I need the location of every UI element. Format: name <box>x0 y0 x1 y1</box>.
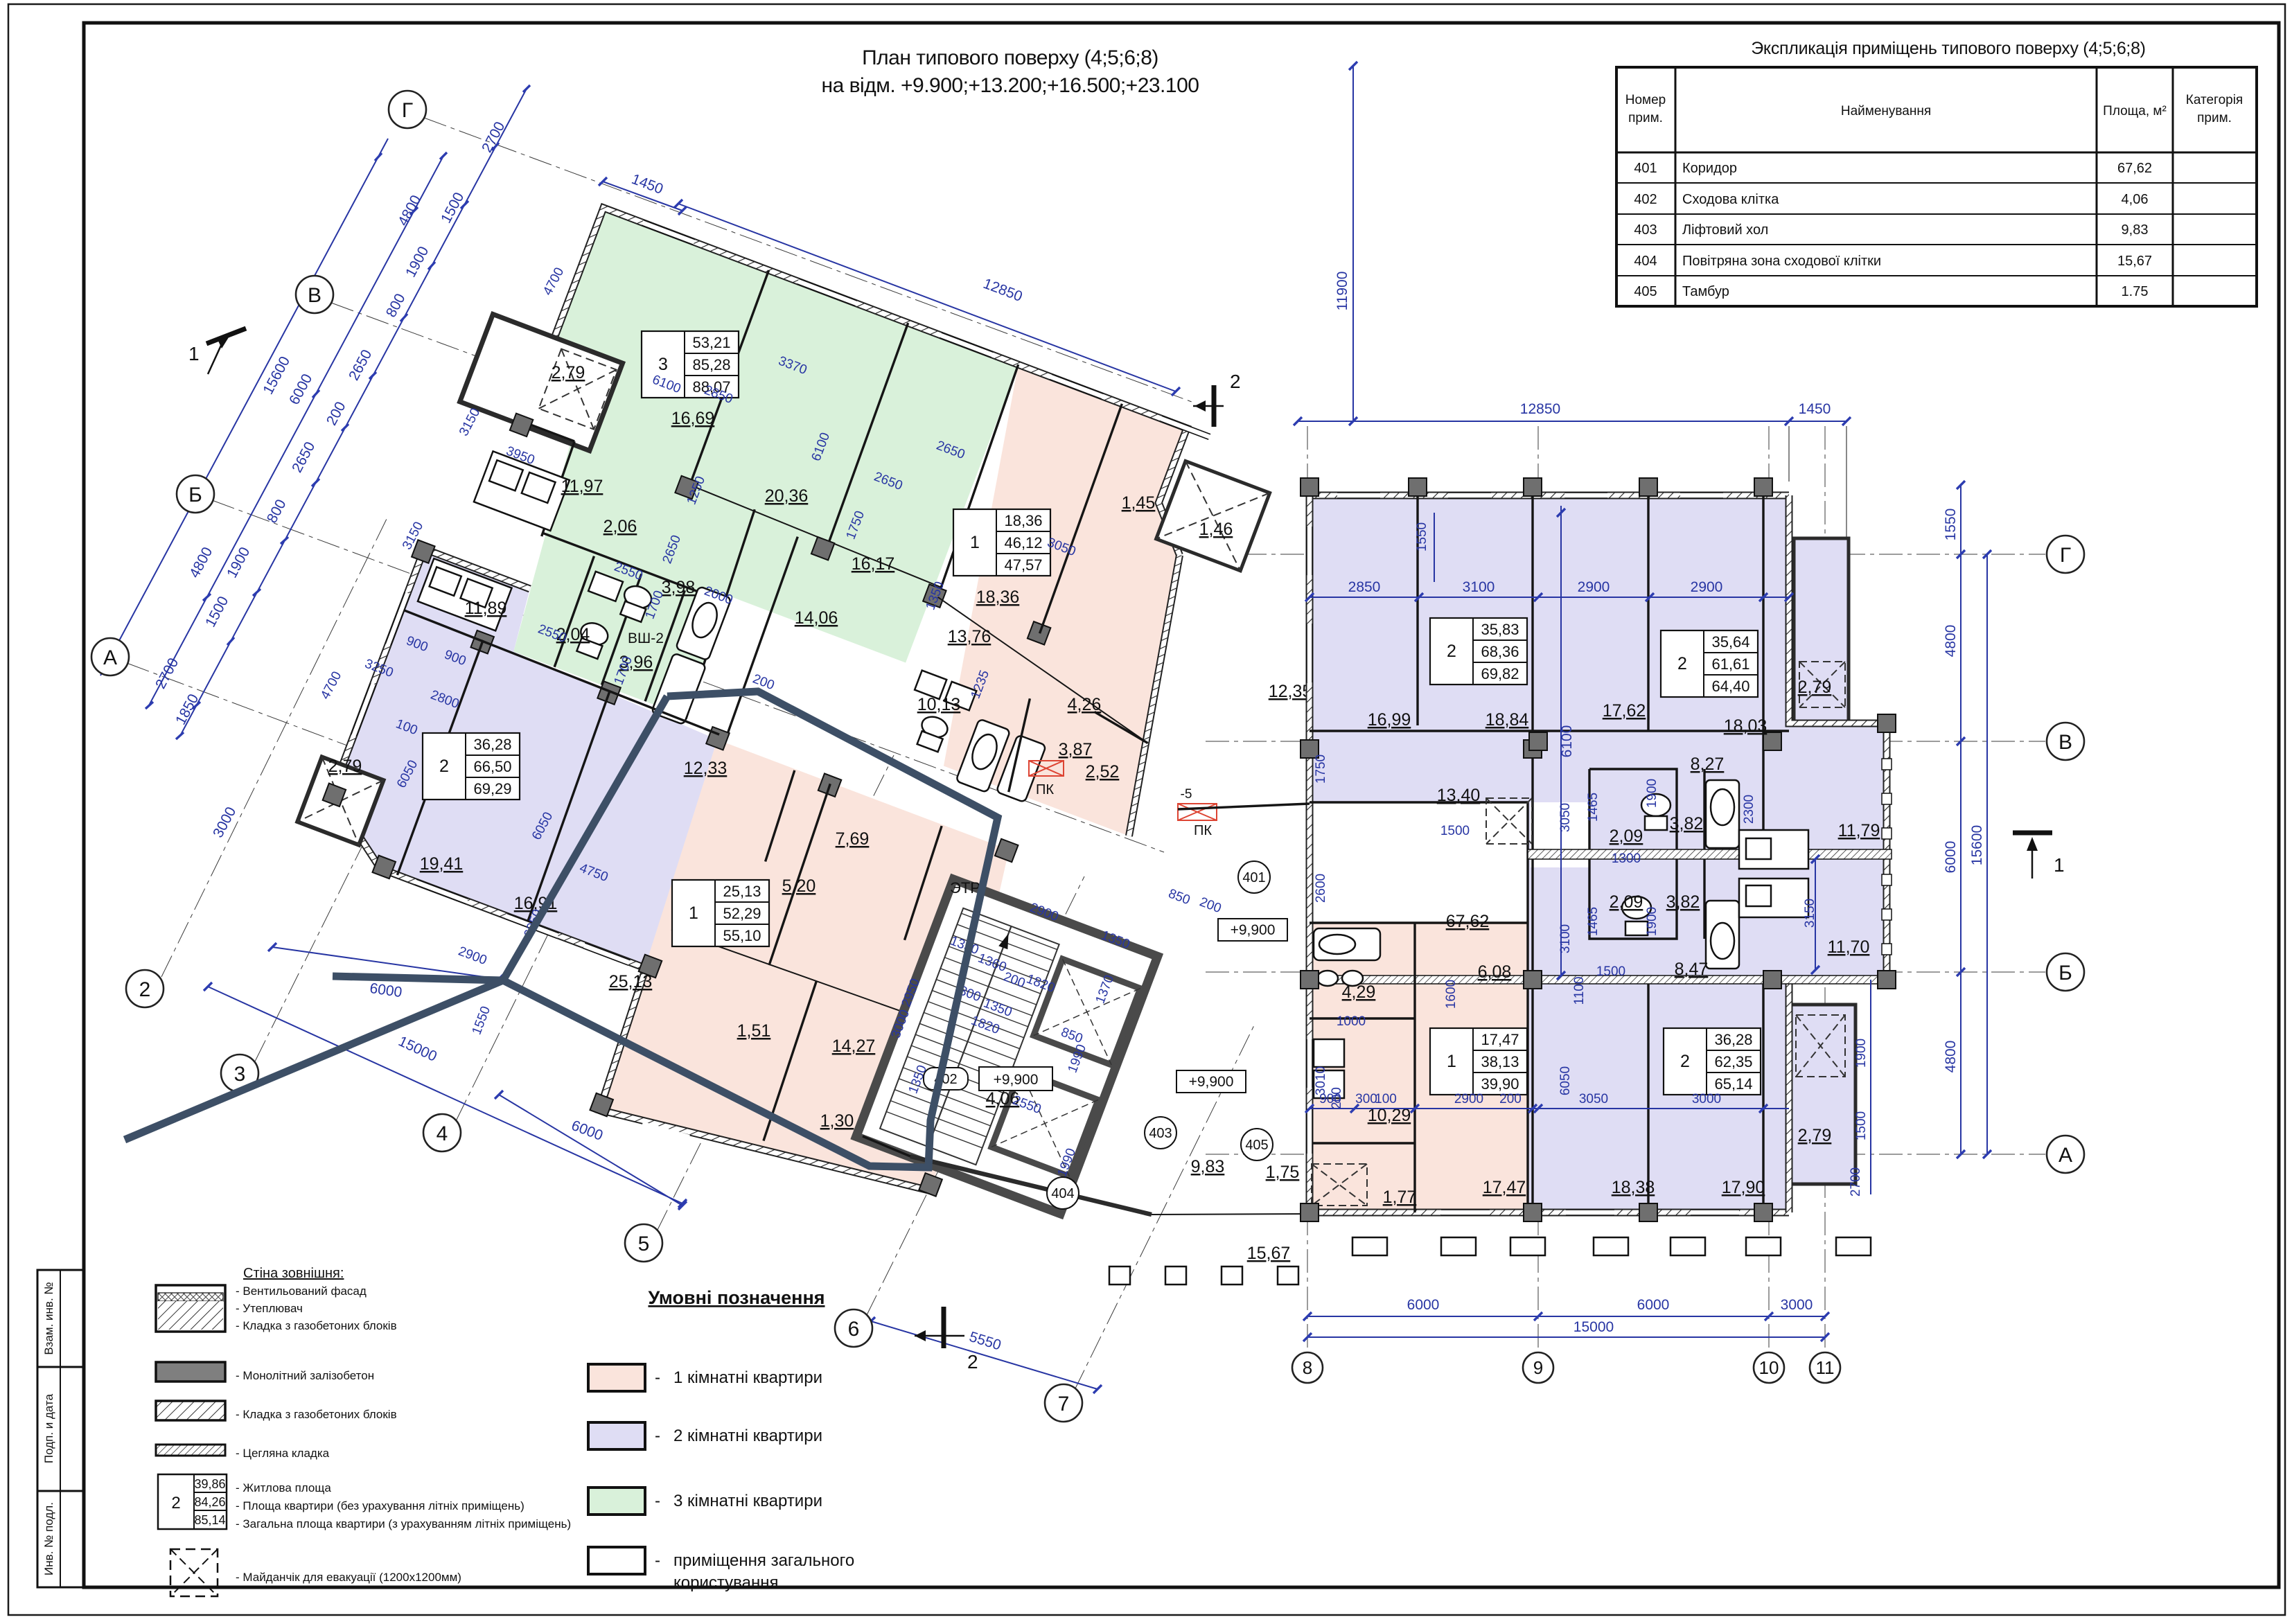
svg-text:- Кладка з газобетоних блоків: - Кладка з газобетоних блоків <box>236 1408 397 1421</box>
svg-text:2900: 2900 <box>1578 579 1610 595</box>
svg-text:1500: 1500 <box>1440 824 1470 838</box>
svg-text:405: 405 <box>1245 1138 1268 1153</box>
svg-text:3: 3 <box>234 1063 246 1086</box>
svg-text:39,90: 39,90 <box>1481 1075 1519 1093</box>
svg-text:11,97: 11,97 <box>561 477 603 496</box>
svg-text:5: 5 <box>638 1233 650 1255</box>
svg-text:+9,900: +9,900 <box>1189 1074 1234 1090</box>
svg-text:85,14: 85,14 <box>194 1513 225 1527</box>
svg-text:- Житлова площа: - Житлова площа <box>236 1481 331 1494</box>
svg-text:Б: Б <box>188 484 202 506</box>
svg-text:користування: користування <box>673 1573 778 1592</box>
svg-text:ПК: ПК <box>1194 823 1212 838</box>
svg-text:1,46: 1,46 <box>1199 520 1233 539</box>
svg-text:1.75: 1.75 <box>2122 284 2149 299</box>
svg-text:404: 404 <box>1634 254 1657 269</box>
svg-text:3050: 3050 <box>1558 803 1573 832</box>
svg-text:Коридор: Коридор <box>1682 161 1737 176</box>
svg-text:3: 3 <box>658 355 668 374</box>
svg-text:Г: Г <box>2060 544 2071 567</box>
svg-text:Найменування: Найменування <box>1841 104 1931 118</box>
svg-text:11,89: 11,89 <box>465 599 507 618</box>
svg-text:- Кладка з газобетоних блоків: - Кладка з газобетоних блоків <box>236 1319 397 1332</box>
svg-text:8: 8 <box>1303 1357 1312 1378</box>
svg-text:9: 9 <box>1533 1357 1543 1378</box>
svg-text:прим.: прим. <box>2197 111 2232 125</box>
svg-text:5,20: 5,20 <box>782 876 816 896</box>
svg-text:402: 402 <box>1634 192 1657 207</box>
svg-text:3000: 3000 <box>1781 1297 1813 1313</box>
svg-text:100: 100 <box>1375 1092 1397 1106</box>
svg-text:-: - <box>655 1427 660 1445</box>
svg-text:18,03: 18,03 <box>1724 716 1768 736</box>
svg-text:17,47: 17,47 <box>1481 1031 1519 1048</box>
svg-text:- Монолітний залізобетон: - Монолітний залізобетон <box>236 1369 374 1382</box>
svg-text:13,76: 13,76 <box>948 627 991 646</box>
svg-text:1900: 1900 <box>1854 1039 1869 1068</box>
svg-text:200: 200 <box>1499 1092 1522 1106</box>
svg-text:3,98: 3,98 <box>662 578 696 597</box>
svg-text:85,28: 85,28 <box>692 356 730 373</box>
svg-text:200: 200 <box>1330 1087 1344 1109</box>
svg-text:84,26: 84,26 <box>194 1495 225 1509</box>
svg-text:12,35: 12,35 <box>1269 682 1312 701</box>
svg-text:+9,900: +9,900 <box>1231 922 1276 938</box>
svg-text:7: 7 <box>1058 1393 1070 1415</box>
svg-text:64,40: 64,40 <box>1711 678 1749 695</box>
svg-text:2850: 2850 <box>1348 579 1381 595</box>
svg-text:Экспликація приміщень типового: Экспликація приміщень типового поверху (… <box>1751 39 2145 58</box>
svg-text:4800: 4800 <box>1943 1041 1959 1073</box>
svg-text:403: 403 <box>1634 222 1657 238</box>
svg-text:16,99: 16,99 <box>1368 710 1411 730</box>
svg-text:6000: 6000 <box>1407 1297 1440 1313</box>
svg-text:46,12: 46,12 <box>1004 534 1042 551</box>
svg-text:2: 2 <box>1447 642 1456 661</box>
svg-text:401: 401 <box>1242 870 1265 885</box>
svg-text:65,14: 65,14 <box>1714 1075 1752 1093</box>
svg-text:11: 11 <box>1816 1357 1835 1378</box>
svg-text:прим.: прим. <box>1628 111 1663 125</box>
svg-text:10,13: 10,13 <box>917 695 961 714</box>
svg-text:6000: 6000 <box>1943 841 1959 874</box>
svg-text:3100: 3100 <box>1558 924 1573 953</box>
svg-text:3100: 3100 <box>1463 579 1495 595</box>
svg-text:1,77: 1,77 <box>1383 1188 1417 1207</box>
svg-text:1300: 1300 <box>1612 851 1641 866</box>
svg-text:3,82: 3,82 <box>1670 814 1704 833</box>
svg-text:Б: Б <box>2059 962 2072 985</box>
svg-text:В: В <box>2059 731 2072 754</box>
svg-text:-: - <box>655 1492 660 1510</box>
svg-text:53,21: 53,21 <box>692 334 730 351</box>
svg-text:2900: 2900 <box>1454 1092 1483 1106</box>
svg-text:1465: 1465 <box>1586 907 1601 936</box>
svg-text:приміщення загального: приміщення загального <box>673 1551 854 1570</box>
svg-text:Категорія: Категорія <box>2186 93 2243 107</box>
svg-text:16,17: 16,17 <box>852 554 895 574</box>
svg-text:67,62: 67,62 <box>1446 912 1490 931</box>
svg-text:1500: 1500 <box>1854 1111 1869 1140</box>
svg-text:9,83: 9,83 <box>2122 222 2149 238</box>
svg-text:1550: 1550 <box>1943 509 1959 541</box>
svg-text:2: 2 <box>439 757 449 776</box>
svg-text:3,82: 3,82 <box>1666 892 1700 912</box>
svg-text:ВШ-2: ВШ-2 <box>628 630 664 646</box>
svg-text:1900: 1900 <box>1645 907 1659 936</box>
svg-text:52,29: 52,29 <box>723 905 761 922</box>
svg-text:1750: 1750 <box>1314 754 1328 784</box>
svg-text:18,84: 18,84 <box>1486 710 1529 730</box>
svg-text:3000: 3000 <box>1692 1092 1721 1106</box>
svg-text:План типового поверху (4;5;6;8: План типового поверху (4;5;6;8) <box>862 46 1158 69</box>
svg-text:6000: 6000 <box>1637 1297 1670 1313</box>
svg-text:6,08: 6,08 <box>1478 962 1512 982</box>
svg-text:12,33: 12,33 <box>684 759 728 778</box>
svg-text:39,86: 39,86 <box>194 1477 225 1491</box>
svg-text:Умовні позначення: Умовні позначення <box>648 1287 825 1308</box>
svg-text:3,87: 3,87 <box>1059 740 1093 759</box>
svg-text:2,06: 2,06 <box>603 517 637 536</box>
svg-text:36,28: 36,28 <box>473 736 511 753</box>
svg-text:15,67: 15,67 <box>2117 254 2152 269</box>
svg-text:-: - <box>655 1551 660 1570</box>
svg-text:300: 300 <box>1355 1092 1377 1106</box>
svg-text:6: 6 <box>848 1318 860 1341</box>
svg-text:4,06: 4,06 <box>2122 192 2149 207</box>
svg-text:ЭТР: ЭТР <box>950 879 980 897</box>
svg-text:Повітряна зона сходової клітки: Повітряна зона сходової клітки <box>1682 254 1881 269</box>
svg-text:2,79: 2,79 <box>328 757 362 776</box>
svg-text:-: - <box>655 1368 660 1387</box>
svg-text:61,61: 61,61 <box>1711 655 1749 673</box>
svg-text:405: 405 <box>1634 284 1657 299</box>
svg-text:7,69: 7,69 <box>836 829 870 849</box>
svg-text:- Загальна площа квартири (з у: - Загальна площа квартири (з урахуванням… <box>236 1517 571 1530</box>
svg-text:2,52: 2,52 <box>1086 762 1120 782</box>
svg-text:35,83: 35,83 <box>1481 621 1519 638</box>
svg-text:А: А <box>2059 1144 2072 1167</box>
svg-text:-5: -5 <box>1181 787 1192 802</box>
svg-text:18,38: 18,38 <box>1612 1178 1655 1197</box>
svg-text:- Майданчік для евакуації (120: - Майданчік для евакуації (1200х1200мм) <box>236 1571 461 1584</box>
svg-text:Подп. и дата: Подп. и дата <box>42 1393 55 1463</box>
svg-text:18,36: 18,36 <box>976 588 1020 607</box>
svg-text:2: 2 <box>171 1494 180 1512</box>
svg-text:68,36: 68,36 <box>1481 643 1519 660</box>
svg-text:35,64: 35,64 <box>1711 633 1749 651</box>
svg-text:3010: 3010 <box>1314 1066 1328 1095</box>
svg-text:9,83: 9,83 <box>1191 1157 1225 1176</box>
svg-text:1: 1 <box>689 903 698 923</box>
svg-text:2700: 2700 <box>1849 1167 1863 1197</box>
svg-text:20,36: 20,36 <box>765 486 809 506</box>
svg-text:2,79: 2,79 <box>552 363 585 382</box>
svg-text:Инв. № подл.: Инв. № подл. <box>42 1502 55 1576</box>
svg-text:4: 4 <box>437 1122 448 1145</box>
svg-text:Сходова клітка: Сходова клітка <box>1682 192 1779 207</box>
svg-text:3 кімнатні квартири: 3 кімнатні квартири <box>673 1492 822 1510</box>
svg-text:1600: 1600 <box>1444 980 1458 1009</box>
svg-text:1 кімнатні квартири: 1 кімнатні квартири <box>673 1368 822 1387</box>
svg-text:В: В <box>308 284 321 307</box>
svg-text:69,82: 69,82 <box>1481 665 1519 682</box>
svg-text:1465: 1465 <box>1586 793 1601 822</box>
svg-text:1,45: 1,45 <box>1122 493 1156 513</box>
svg-text:15000: 15000 <box>1573 1319 1614 1335</box>
svg-text:10: 10 <box>1759 1357 1779 1378</box>
svg-text:2,09: 2,09 <box>1610 892 1643 912</box>
svg-text:16,69: 16,69 <box>671 409 715 428</box>
svg-text:18,36: 18,36 <box>1004 512 1042 529</box>
svg-text:25,13: 25,13 <box>609 972 653 991</box>
svg-text:Тамбур: Тамбур <box>1682 284 1729 299</box>
svg-text:ПК: ПК <box>1036 782 1054 797</box>
svg-text:47,57: 47,57 <box>1004 556 1042 574</box>
svg-text:55,10: 55,10 <box>723 927 761 944</box>
svg-text:25,13: 25,13 <box>723 883 761 900</box>
svg-text:Площа, м²: Площа, м² <box>2103 104 2167 118</box>
svg-text:2,09: 2,09 <box>1610 827 1643 846</box>
svg-text:11900: 11900 <box>1334 272 1350 311</box>
svg-text:66,50: 66,50 <box>473 758 511 775</box>
svg-text:11,79: 11,79 <box>1838 821 1880 840</box>
svg-text:2: 2 <box>1680 1052 1690 1071</box>
svg-text:36,28: 36,28 <box>1714 1031 1752 1048</box>
svg-text:1,51: 1,51 <box>737 1021 771 1041</box>
svg-text:8,47: 8,47 <box>1675 960 1709 979</box>
svg-text:Взам. инв. №: Взам. инв. № <box>42 1282 55 1354</box>
svg-text:1: 1 <box>970 533 980 552</box>
svg-text:2,79: 2,79 <box>1798 678 1832 697</box>
svg-text:1100: 1100 <box>1572 977 1587 1005</box>
svg-text:6100: 6100 <box>1559 725 1575 758</box>
svg-text:69,29: 69,29 <box>473 780 511 797</box>
svg-text:12850: 12850 <box>1520 401 1560 417</box>
svg-text:А: А <box>103 646 117 669</box>
svg-text:1450: 1450 <box>1799 401 1831 417</box>
svg-text:1900: 1900 <box>1645 779 1659 808</box>
svg-text:2900: 2900 <box>1691 579 1723 595</box>
svg-text:1: 1 <box>2054 854 2065 876</box>
svg-text:17,90: 17,90 <box>1722 1178 1765 1197</box>
svg-text:403: 403 <box>1149 1126 1172 1141</box>
svg-text:2: 2 <box>1677 654 1687 673</box>
svg-text:67,62: 67,62 <box>2117 161 2152 176</box>
svg-text:Номер: Номер <box>1625 93 1666 107</box>
svg-text:17,47: 17,47 <box>1483 1178 1526 1197</box>
svg-text:13,40: 13,40 <box>1437 786 1481 805</box>
svg-text:1500: 1500 <box>1596 964 1625 979</box>
svg-text:6050: 6050 <box>1558 1066 1573 1095</box>
svg-text:2: 2 <box>1230 371 1241 392</box>
svg-text:38,13: 38,13 <box>1481 1053 1519 1070</box>
svg-text:4,29: 4,29 <box>1342 982 1376 1002</box>
svg-text:14,06: 14,06 <box>795 608 838 628</box>
svg-text:14,27: 14,27 <box>832 1036 876 1056</box>
svg-text:19,41: 19,41 <box>420 854 464 874</box>
svg-text:на відм. +9.900;+13.200;+16.50: на відм. +9.900;+13.200;+16.500;+23.100 <box>822 74 1199 97</box>
svg-text:1,75: 1,75 <box>1266 1163 1300 1182</box>
svg-text:3050: 3050 <box>1579 1092 1608 1106</box>
svg-text:1: 1 <box>188 343 200 364</box>
svg-text:1: 1 <box>1447 1052 1456 1071</box>
svg-text:2 кімнатні квартири: 2 кімнатні квартири <box>673 1427 822 1445</box>
svg-text:- Вентильований фасад: - Вентильований фасад <box>236 1285 367 1298</box>
svg-text:1,30: 1,30 <box>820 1111 854 1131</box>
svg-text:2: 2 <box>139 978 151 1001</box>
svg-text:Г: Г <box>402 99 413 122</box>
svg-text:2: 2 <box>967 1351 978 1373</box>
svg-text:+9,900: +9,900 <box>994 1072 1039 1088</box>
svg-text:1000: 1000 <box>1337 1014 1366 1029</box>
svg-text:17,62: 17,62 <box>1603 701 1646 721</box>
svg-text:404: 404 <box>1051 1186 1074 1201</box>
svg-text:Ліфтовий хол: Ліфтовий хол <box>1682 222 1768 238</box>
svg-text:2,79: 2,79 <box>1798 1126 1832 1145</box>
svg-text:15600: 15600 <box>1969 825 1985 865</box>
svg-text:1550: 1550 <box>1415 522 1429 551</box>
svg-text:- Цегляна кладка: - Цегляна кладка <box>236 1447 330 1460</box>
svg-text:401: 401 <box>1634 161 1657 176</box>
svg-text:3150: 3150 <box>1803 899 1817 928</box>
svg-text:- Площа квартири (без урахуван: - Площа квартири (без урахування літніх … <box>236 1499 524 1512</box>
svg-text:- Утеплювач: - Утеплювач <box>236 1302 303 1315</box>
svg-text:2300: 2300 <box>1742 795 1756 824</box>
svg-text:11,70: 11,70 <box>1828 937 1870 957</box>
svg-text:8,27: 8,27 <box>1691 754 1725 774</box>
svg-text:4800: 4800 <box>1943 625 1959 657</box>
svg-text:2600: 2600 <box>1314 874 1328 903</box>
svg-text:15,67: 15,67 <box>1247 1244 1291 1263</box>
svg-text:4,26: 4,26 <box>1068 695 1102 714</box>
svg-text:Стіна зовнішня:: Стіна зовнішня: <box>243 1266 344 1281</box>
svg-text:62,35: 62,35 <box>1714 1053 1752 1070</box>
